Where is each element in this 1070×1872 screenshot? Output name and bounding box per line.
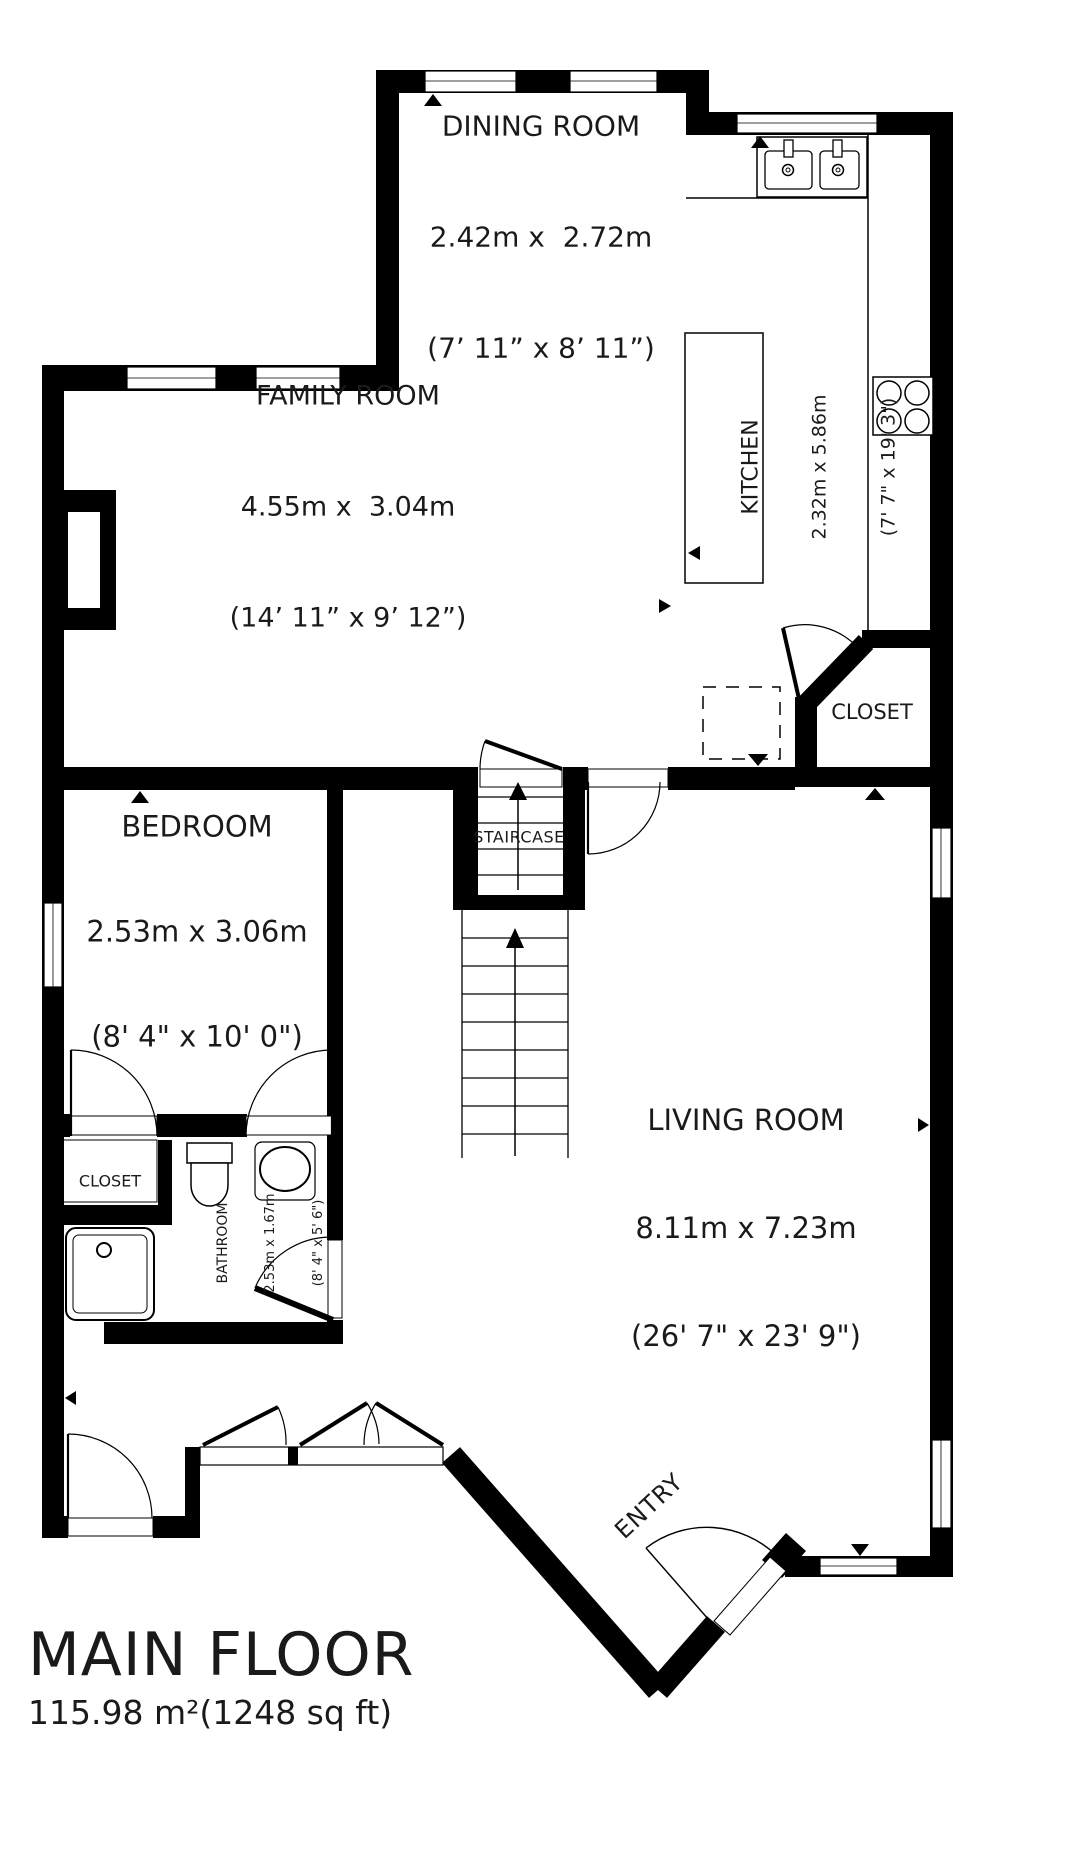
wall-stair-right <box>563 768 585 910</box>
door-porch-single <box>203 1407 286 1445</box>
bedroom-metric: 2.53m x 3.06m <box>86 915 307 950</box>
door-porch-french <box>300 1403 443 1445</box>
wall-closet-bottom <box>795 767 953 787</box>
dining-room-metric: 2.42m x 2.72m <box>427 219 655 256</box>
marker-arrow-window-down <box>851 1544 869 1556</box>
porch-door-post <box>288 1447 298 1465</box>
wall-middle-3 <box>668 767 795 790</box>
kitchen-metric: 2.32m x 5.86m <box>809 395 832 540</box>
floor-title: MAIN FLOOR <box>28 1624 414 1687</box>
room-label-living: LIVING ROOM 8.11m x 7.23m (26' 7" x 23' … <box>631 1030 861 1426</box>
window-right-2 <box>932 1440 951 1528</box>
refrigerator-dashed-outline <box>703 687 780 759</box>
floor-plan: DINING ROOM 2.42m x 2.72m (7’ 11” x 8’ 1… <box>0 0 1070 1872</box>
bedroom-name: BEDROOM <box>86 810 307 845</box>
wall-bedroom-bottom-1 <box>42 1114 70 1137</box>
living-room-imperial: (26' 7" x 23' 9") <box>631 1318 861 1354</box>
wall-closet-small-bottom <box>42 1205 172 1225</box>
opening-entry <box>714 1557 786 1635</box>
wall-stair-bottom <box>453 895 585 910</box>
oval-sink-icon <box>255 1142 315 1200</box>
title-block: MAIN FLOOR 115.98 m²(1248 sq ft) <box>28 1624 414 1733</box>
room-label-bathroom: BATHROOM 2.53m x 1.67m (8' 4" x 5' 6") <box>183 1193 359 1292</box>
wall-closet-corner <box>795 697 817 787</box>
opening-mudroom <box>68 1518 153 1536</box>
opening-living <box>588 769 668 787</box>
wall-bottom-1 <box>42 1516 68 1538</box>
label-staircase: STAIRCASE <box>473 828 565 847</box>
label-closet-bedroom: CLOSET <box>79 1172 141 1191</box>
living-room-metric: 8.11m x 7.23m <box>631 1210 861 1246</box>
marker-arrow-mudroom-left <box>65 1391 76 1405</box>
label-closet-upper: CLOSET <box>831 700 913 724</box>
wall-closet-top <box>862 630 953 648</box>
wall-closet-small-right <box>158 1140 172 1206</box>
door-staircase <box>480 741 562 769</box>
dining-room-name: DINING ROOM <box>427 108 655 145</box>
window-kitchen <box>737 114 877 133</box>
opening-staircase <box>480 769 562 787</box>
bathroom-metric: 2.53m x 1.67m <box>263 1193 279 1292</box>
bathroom-name: BATHROOM <box>215 1193 231 1292</box>
marker-arrow-right-wall <box>918 1118 929 1132</box>
room-label-bedroom: BEDROOM 2.53m x 3.06m (8' 4" x 10' 0") <box>86 740 307 1125</box>
bathroom-imperial: (8' 4" x 5' 6") <box>311 1193 327 1292</box>
fireplace-icon <box>64 490 116 630</box>
wall-entry-diagonal-left <box>451 1455 658 1690</box>
family-room-metric: 4.55m x 3.04m <box>230 489 467 526</box>
door-living <box>588 782 660 854</box>
shower-pan-icon <box>66 1228 154 1320</box>
wall-closet-diagonal <box>807 642 866 703</box>
window-right-1 <box>932 828 951 898</box>
room-label-kitchen: KITCHEN 2.32m x 5.86m (7' 7" x 19' 3") <box>694 395 947 540</box>
marker-arrow-closet-up <box>865 788 885 800</box>
marker-arrow-fridge-down <box>748 754 768 766</box>
window-bedroom <box>44 903 62 987</box>
living-room-name: LIVING ROOM <box>631 1102 861 1138</box>
wall-entry-diagonal-right <box>658 1624 716 1690</box>
kitchen-name: KITCHEN <box>740 395 763 540</box>
family-room-name: FAMILY ROOM <box>230 378 467 415</box>
family-room-imperial: (14’ 11” x 9’ 12”) <box>230 600 467 637</box>
wall-bathroom-bottom <box>104 1322 343 1344</box>
window-living-bottom <box>820 1558 897 1575</box>
kitchen-sink-icon <box>757 137 867 197</box>
window-family-1 <box>127 367 216 389</box>
bedroom-imperial: (8' 4" x 10' 0") <box>86 1020 307 1055</box>
wall-bedroom-right <box>327 768 343 1240</box>
floor-area: 115.98 m²(1248 sq ft) <box>28 1693 414 1733</box>
marker-arrow-island-below <box>659 599 671 613</box>
wall-bottom-2 <box>153 1516 200 1538</box>
kitchen-imperial: (7' 7" x 19' 3") <box>878 395 901 540</box>
door-mudroom <box>68 1434 152 1518</box>
opening-porch-doors <box>200 1447 443 1465</box>
room-label-family: FAMILY ROOM 4.55m x 3.04m (14’ 11” x 9’ … <box>230 304 467 711</box>
